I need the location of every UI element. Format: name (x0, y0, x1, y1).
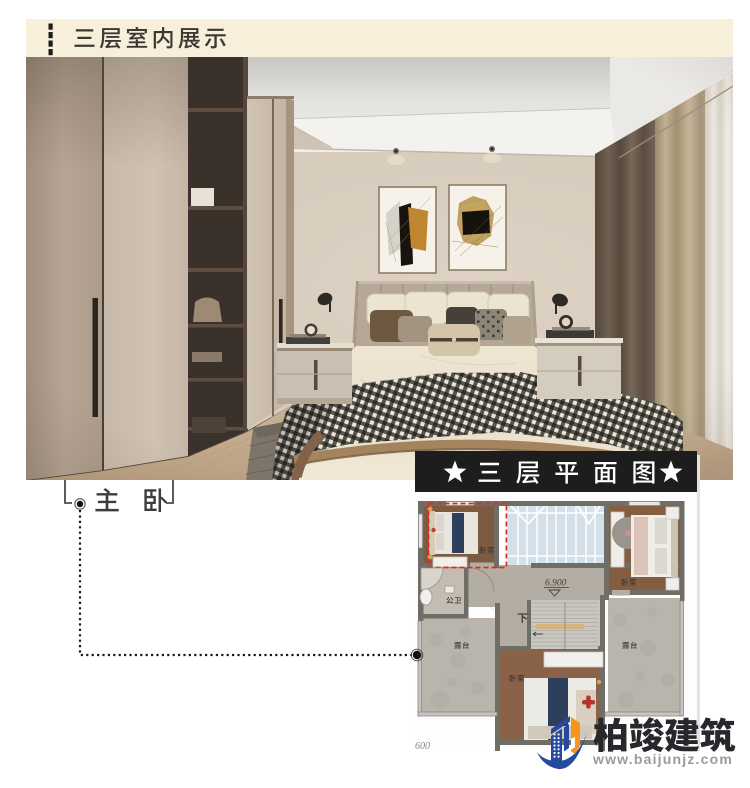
svg-text:600: 600 (415, 741, 430, 752)
svg-text:6.900: 6.900 (545, 579, 567, 589)
svg-text:www.baijunjz.com: www.baijunjz.com (592, 751, 733, 767)
